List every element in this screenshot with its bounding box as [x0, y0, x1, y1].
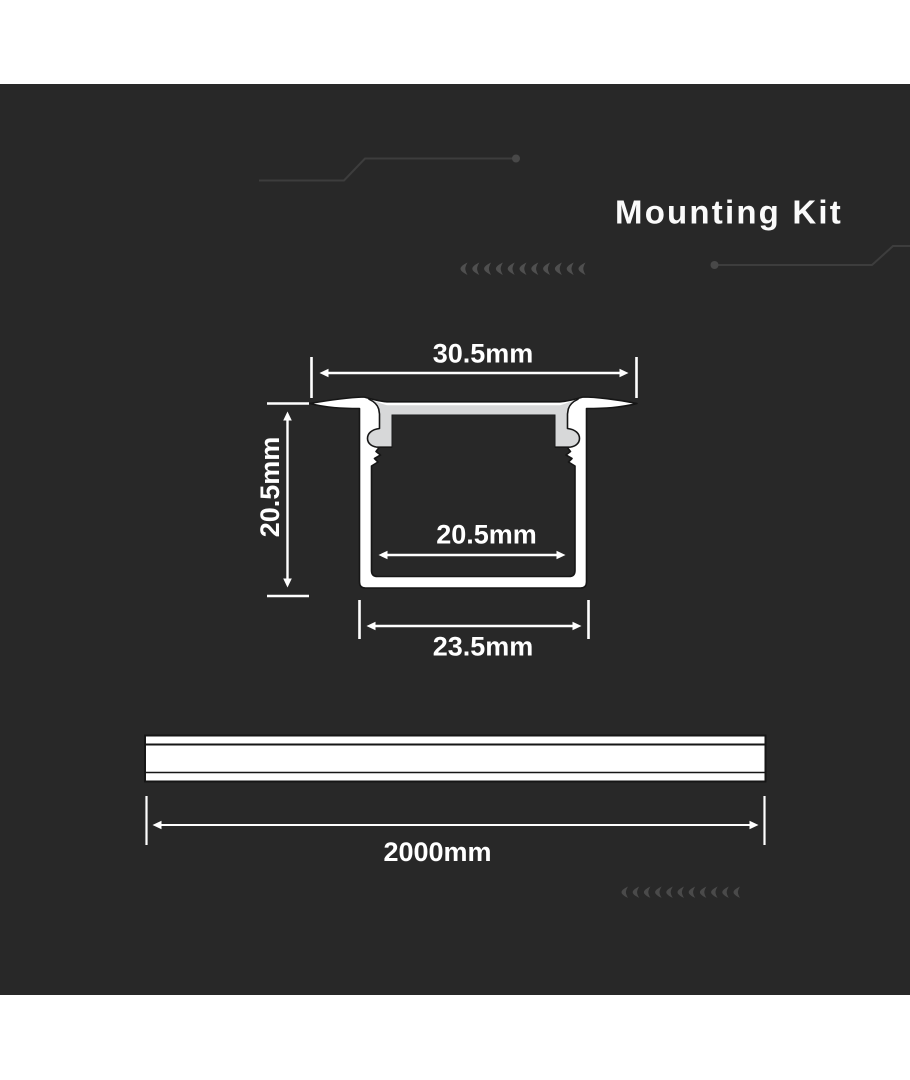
svg-text:Mounting Kit: Mounting Kit [615, 194, 843, 231]
svg-text:30.5mm: 30.5mm [433, 339, 534, 369]
svg-text:20.5mm: 20.5mm [255, 437, 285, 538]
svg-text:23.5mm: 23.5mm [433, 632, 534, 662]
svg-text:2000mm: 2000mm [383, 837, 491, 867]
svg-text:20.5mm: 20.5mm [436, 520, 537, 550]
